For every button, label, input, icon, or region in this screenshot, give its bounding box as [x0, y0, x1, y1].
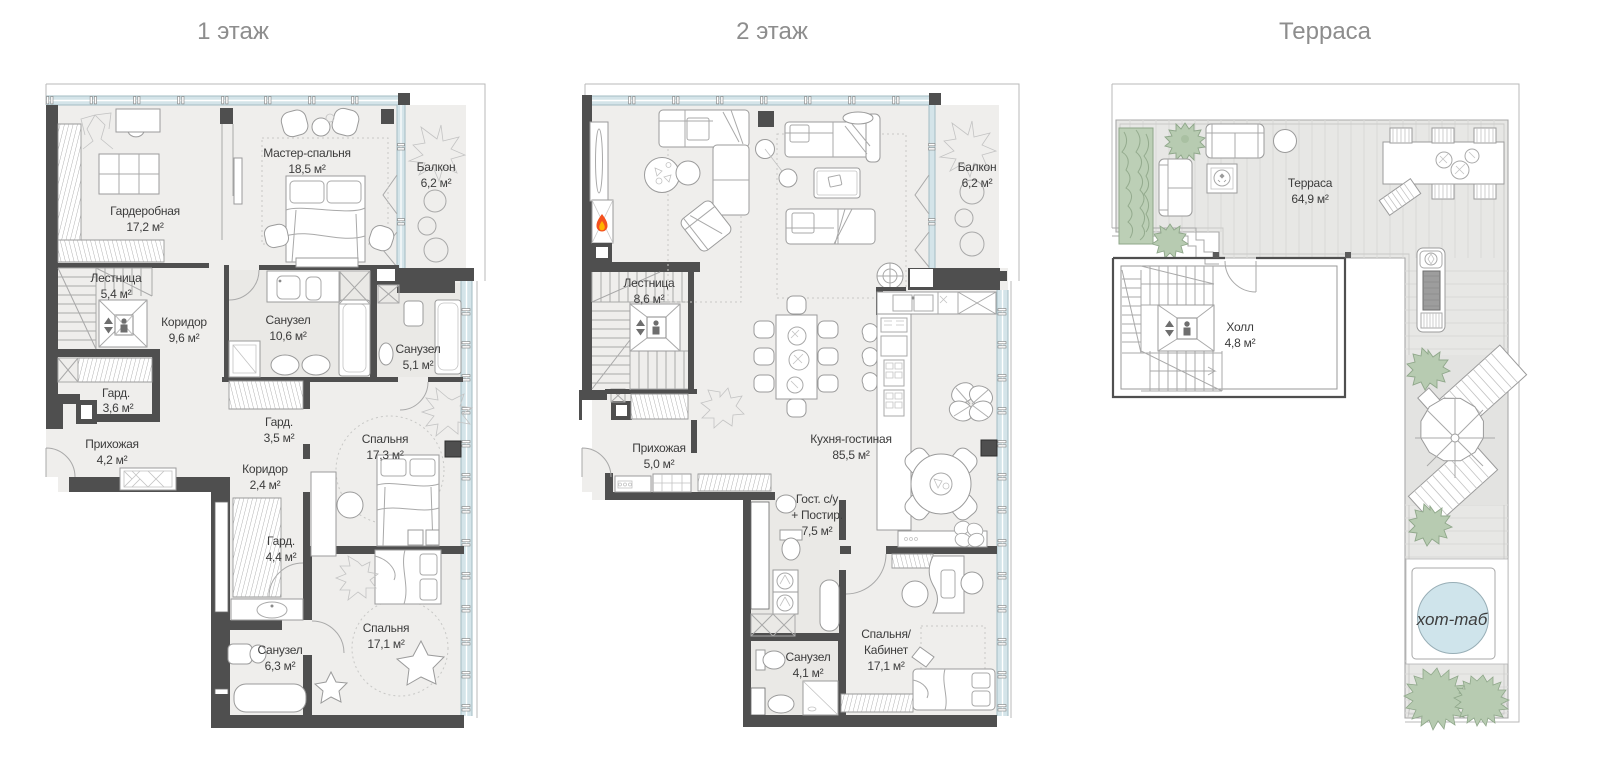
svg-text:9,6 м²: 9,6 м² — [169, 331, 200, 345]
svg-text:5,4 м²: 5,4 м² — [101, 287, 132, 301]
svg-text:Спальня: Спальня — [362, 432, 408, 446]
svg-text:8,6 м²: 8,6 м² — [634, 292, 665, 306]
svg-text:Санузел: Санузел — [786, 650, 831, 664]
svg-text:18,5 м²: 18,5 м² — [288, 162, 325, 176]
svg-text:6,2 м²: 6,2 м² — [421, 176, 452, 190]
svg-text:Коридор: Коридор — [242, 462, 288, 476]
svg-text:Санузел: Санузел — [258, 643, 303, 657]
svg-text:4,8 м²: 4,8 м² — [1225, 336, 1256, 350]
svg-text:17,3 м²: 17,3 м² — [366, 448, 403, 462]
svg-text:Гард.: Гард. — [267, 534, 295, 548]
svg-text:17,1 м²: 17,1 м² — [367, 637, 404, 651]
svg-text:Гост. с/у: Гост. с/у — [796, 492, 839, 506]
svg-text:17,1 м²: 17,1 м² — [867, 659, 904, 673]
svg-text:Мастер-спальня: Мастер-спальня — [263, 146, 351, 160]
svg-text:Санузел: Санузел — [266, 313, 311, 327]
svg-text:Спальня/: Спальня/ — [861, 627, 911, 641]
svg-text:Лестница: Лестница — [91, 271, 142, 285]
svg-text:Кабинет: Кабинет — [864, 643, 909, 657]
svg-text:17,2 м²: 17,2 м² — [126, 220, 163, 234]
svg-text:6,2 м²: 6,2 м² — [962, 176, 993, 190]
svg-text:2,4 м²: 2,4 м² — [250, 478, 281, 492]
svg-text:Гард.: Гард. — [265, 415, 293, 429]
svg-text:Прихожая: Прихожая — [85, 437, 139, 451]
svg-text:5,1 м²: 5,1 м² — [403, 358, 434, 372]
svg-text:4,4 м²: 4,4 м² — [266, 550, 297, 564]
svg-text:2 этаж: 2 этаж — [736, 18, 808, 45]
svg-text:1 этаж: 1 этаж — [197, 18, 269, 45]
svg-text:Балкон: Балкон — [417, 160, 456, 174]
svg-text:3,6 м²: 3,6 м² — [103, 401, 134, 415]
svg-text:6,3 м²: 6,3 м² — [265, 659, 296, 673]
svg-text:Кухня-гостиная: Кухня-гостиная — [810, 432, 891, 446]
svg-text:4,1 м²: 4,1 м² — [793, 666, 824, 680]
svg-text:Холл: Холл — [1226, 320, 1254, 334]
svg-text:Лестница: Лестница — [624, 276, 675, 290]
svg-text:4,2 м²: 4,2 м² — [97, 453, 128, 467]
svg-text:хот-таб: хот-таб — [1416, 610, 1489, 629]
svg-text:Терраса: Терраса — [1288, 176, 1333, 190]
svg-text:3,5 м²: 3,5 м² — [264, 431, 295, 445]
svg-text:7,5 м²: 7,5 м² — [802, 524, 833, 538]
svg-text:85,5 м²: 85,5 м² — [832, 448, 869, 462]
svg-text:Терраса: Терраса — [1279, 18, 1372, 45]
svg-text:64,9 м²: 64,9 м² — [1291, 192, 1328, 206]
svg-text:Коридор: Коридор — [161, 315, 207, 329]
svg-text:10,6 м²: 10,6 м² — [269, 329, 306, 343]
svg-text:Гард.: Гард. — [102, 386, 130, 400]
svg-text:+ Постир.: + Постир. — [791, 508, 843, 522]
svg-text:5,0 м²: 5,0 м² — [644, 457, 675, 471]
svg-text:Гардеробная: Гардеробная — [110, 204, 180, 218]
svg-text:Спальня: Спальня — [363, 621, 409, 635]
svg-text:Санузел: Санузел — [396, 342, 441, 356]
svg-text:Балкон: Балкон — [958, 160, 997, 174]
svg-text:Прихожая: Прихожая — [632, 441, 686, 455]
